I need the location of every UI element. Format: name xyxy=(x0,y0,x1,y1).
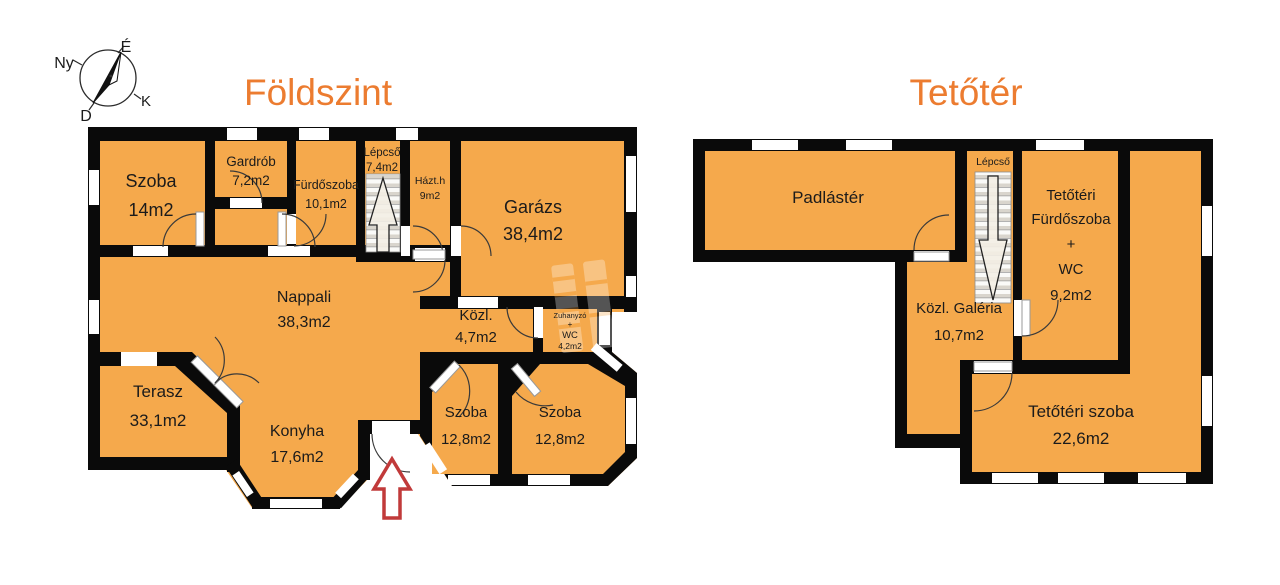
room-area-konyha: 17,6m2 xyxy=(270,449,323,466)
compass-label-north: É xyxy=(121,37,132,56)
room-label-szoba-attic: Tetőtéri szoba xyxy=(1028,402,1134,421)
room-label-haztartasi: Házt.h xyxy=(415,175,446,187)
entrance-arrow-icon xyxy=(374,459,410,518)
compass-label-east: K xyxy=(141,93,151,110)
staircase-down xyxy=(975,172,1011,303)
compass-label-west: Ny xyxy=(54,55,74,72)
room-area-szoba2: 12,8m2 xyxy=(441,431,491,448)
room-label-lepcso-attic: Lépcső xyxy=(976,156,1010,168)
room-label-kozlekedo: Közl. xyxy=(459,307,492,324)
room-area-galeria: 10,7m2 xyxy=(934,327,984,344)
room-area-furdoszoba: 10,1m2 xyxy=(305,197,347,211)
room-label-furdoszoba-attic-wc: WC xyxy=(1059,261,1084,278)
room-label-furdoszoba-attic-1: Tetőtéri xyxy=(1046,187,1095,204)
room-area-lepcso: 7,4m2 xyxy=(366,162,398,174)
staircase-up xyxy=(366,174,400,252)
room-area-garazs: 38,4m2 xyxy=(503,224,563,244)
room-label-zuhanyzo-wc: WC xyxy=(562,330,578,341)
room-label-konyha: Konyha xyxy=(270,423,324,440)
room-label-zuhanyzo-plus: + xyxy=(568,320,573,329)
room-label-zuhanyzo: Zuhanyzó xyxy=(554,311,587,320)
floor-title-attic: Tetőtér xyxy=(866,72,1066,114)
room-label-gardrob: Gardrób xyxy=(226,154,276,169)
room-area-nappali: 38,3m2 xyxy=(277,314,330,331)
room-label-garazs: Garázs xyxy=(504,197,562,217)
room-area-furdoszoba-attic: 9,2m2 xyxy=(1050,287,1092,304)
compass-needle-icon xyxy=(93,52,121,103)
room-area-haztartasi: 9m2 xyxy=(420,190,441,202)
room-label-furdoszoba-attic-2: Fürdőszoba xyxy=(1031,211,1111,228)
floor-title-ground: Földszint xyxy=(218,72,418,114)
ground-floor-plan: Szoba 14m2 Gardrób 7,2m2 Fürdőszoba 10,1… xyxy=(80,120,650,525)
compass: É Ny K D xyxy=(40,28,160,128)
room-label-lepcso: Lépcső xyxy=(363,147,400,159)
room-area-szoba1: 14m2 xyxy=(128,200,173,220)
room-label-szoba2: Szoba xyxy=(445,404,488,421)
room-label-szoba1: Szoba xyxy=(125,171,177,191)
attic-floor-plan: Padlástér Lépcső Tetőtéri Fürdőszoba + W… xyxy=(685,125,1230,495)
room-label-furdoszoba-attic-plus: + xyxy=(1067,236,1076,253)
room-label-szoba3: Szoba xyxy=(539,404,582,421)
room-area-szoba3: 12,8m2 xyxy=(535,431,585,448)
room-label-galeria: Közl. Galéria xyxy=(916,300,1003,317)
room-label-padlaster: Padlástér xyxy=(792,188,864,207)
floorplan-page: É Ny K D Földszint Tetőtér xyxy=(0,0,1280,585)
room-label-nappali: Nappali xyxy=(277,289,331,306)
room-label-furdoszoba: Fürdőszoba xyxy=(293,178,359,192)
room-area-terasz: 33,1m2 xyxy=(130,411,187,430)
room-area-zuhanyzo: 4,2m2 xyxy=(558,341,582,351)
room-area-gardrob: 7,2m2 xyxy=(232,173,270,188)
room-area-kozlekedo: 4,7m2 xyxy=(455,329,497,346)
room-area-szoba-attic: 22,6m2 xyxy=(1053,429,1110,448)
room-label-terasz: Terasz xyxy=(133,382,183,401)
